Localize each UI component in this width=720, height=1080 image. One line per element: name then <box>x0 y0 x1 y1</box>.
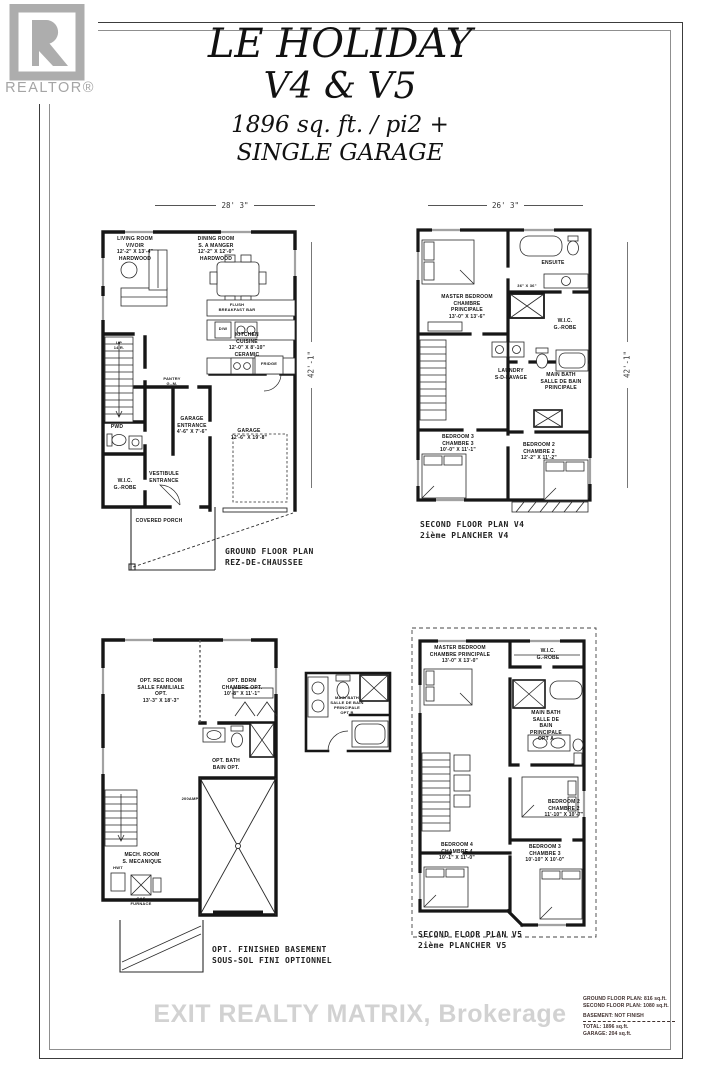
basement-unexcavated-x <box>200 778 276 915</box>
basement-stairs <box>105 790 137 846</box>
label-dishwasher: D/W <box>214 326 232 331</box>
caption-ground-floor: GROUND FLOOR PLAN REZ-DE-CHAUSSEE <box>225 546 314 568</box>
label-electrical-panel: 200AMP <box>177 796 203 801</box>
ground-floor-drawing <box>95 222 307 574</box>
room-label-powder: PWD <box>105 424 129 431</box>
basement-exterior-stairwell <box>120 920 203 972</box>
ground-height-dimension: 42'-1" <box>307 343 316 387</box>
v4-width-dimension: 26' 3" <box>428 201 583 210</box>
powder-room-fixtures <box>107 434 142 449</box>
v5-drawing <box>410 625 605 945</box>
front-door-swing <box>160 485 180 505</box>
v5-master-bed <box>424 669 472 705</box>
room-label-garage: GARAGE 12'-6" X 19'-8" <box>223 428 275 441</box>
basement-plan: OPT. REC ROOM SALLE FAMILIALE OPT. 13'-3… <box>95 628 310 980</box>
room-label-v5-wic: W.I.C. G.-ROBE <box>530 648 566 661</box>
room-label-v5-bedroom2: BEDROOM 2 CHAMBRE 2 11'-10" X 10'-7" <box>544 799 584 819</box>
room-label-vestibule: VESTIBULE ENTRANCE <box>145 471 183 484</box>
v4-bed3 <box>422 454 466 498</box>
title-line1: LE HOLIDAY <box>120 22 560 66</box>
basement-bath-fixtures <box>203 723 274 757</box>
label-furnace: GAS FURNACE <box>123 896 159 906</box>
floorplan-sheet: REALTOR® LE HOLIDAY V4 & V5 1896 sq. ft.… <box>0 0 720 1080</box>
v4-shower <box>510 294 544 318</box>
room-label-mech: MECH. ROOM S. MECANIQUE <box>117 852 167 865</box>
room-label-living: LIVING ROOM VIVOIR 12'-2" X 13'-4" HARDW… <box>109 236 161 262</box>
title-block: LE HOLIDAY V4 & V5 1896 sq. ft. / pi2 + … <box>120 22 560 168</box>
dining-furniture <box>210 255 266 303</box>
ground-height-dim-line-top <box>311 242 312 342</box>
room-label-v4-laundry: LAUNDRY S-D-LAVAGE <box>490 368 532 381</box>
room-label-bath-option: MAIN BATH SALLE DE BAIN PRINCIPALE OPT B <box>330 695 364 715</box>
room-label-v5-mainbath: MAIN BATH SALLE DE BAIN PRINCIPALE OPT A <box>526 710 566 743</box>
realtor-logo-icon <box>6 4 98 82</box>
v4-bed2 <box>544 460 588 500</box>
v5-bed4 <box>424 867 468 907</box>
room-label-garage-entrance: GARAGE ENTRANCE 4'-6" X 7'-6" <box>173 416 211 436</box>
basement-mech-equipment <box>111 873 161 895</box>
room-label-rec: OPT. REC ROOM SALLE FAMILIALE OPT. 13'-3… <box>131 678 191 704</box>
caption-basement: OPT. FINISHED BASEMENT SOUS-SOL FINI OPT… <box>212 944 332 966</box>
ground-floor-plan: LIVING ROOM VIVOIR 12'-2" X 13'-4" HARDW… <box>95 222 307 574</box>
room-label-v5-bedroom4: BEDROOM 4 CHAMBRE 4 10'-1" X 11'-0" <box>437 842 477 862</box>
room-label-v4-bedroom2: BEDROOM 2 CHAMBRE 2 12'-2" X 11'-2" <box>518 442 560 462</box>
v4-height-dimension: 42'-1" <box>623 343 632 387</box>
v4-height-dim-line-top <box>627 242 628 342</box>
title-line2: V4 & V5 <box>120 66 560 107</box>
v4-height-dim-line-bottom <box>627 388 628 488</box>
label-hwt: HWT <box>108 865 128 870</box>
room-label-v4-master: MASTER BEDROOM CHAMBRE PRINCIPALE 13'-0"… <box>438 294 496 320</box>
v4-stairs <box>420 340 446 420</box>
room-label-porch: COVERED PORCH <box>133 518 185 525</box>
stat-garage: GARAGE: 204 sq.ft. <box>583 1031 687 1038</box>
room-label-opt-bath: OPT. BATH BAIN OPT. <box>206 758 246 771</box>
label-pantry: PANTRY G.-M. <box>159 376 185 386</box>
room-label-opt-bdrm: OPT. BDRM CHAMBRE OPT. 10'-8" X 11'-1" <box>217 678 267 698</box>
caption-second-floor-v5: SECOND FLOOR PLAN V5 2ième PLANCHER V5 <box>418 929 522 951</box>
brokerage-watermark: EXIT REALTY MATRIX, Brokerage <box>0 1000 720 1029</box>
room-label-dining: DINING ROOM S. A MANGER 12'-2" X 12'-0" … <box>189 236 243 262</box>
label-flush-breakfast-bar: FLUSH BREAKFAST BAR <box>211 302 263 312</box>
room-label-v4-ensuite: ENSUITE <box>536 260 570 267</box>
room-label-v4-wic: W.I.C. G.-ROBE <box>548 318 582 331</box>
second-floor-v5-plan: MASTER BEDROOM CHAMBRE PRINCIPALE 13'-0"… <box>410 625 605 945</box>
ground-width-dimension: 28' 3" <box>155 201 315 210</box>
room-label-v4-bedroom3: BEDROOM 3 CHAMBRE 3 10'-0" X 11'-1" <box>437 434 479 454</box>
second-floor-v4-plan: MASTER BEDROOM CHAMBRE PRINCIPALE 13'-0"… <box>412 222 597 522</box>
ground-height-dim-line-bottom <box>311 388 312 488</box>
label-stairs-up: UP 14 R. <box>107 340 131 350</box>
v5-bed3 <box>540 869 582 919</box>
label-v4-shower-size: 36" X 36" <box>511 283 543 288</box>
garage-elements <box>223 374 287 512</box>
basement-drawing <box>95 628 310 980</box>
room-label-kitchen: KITCHEN CUISINE 12'-0" X 8'-10" CERAMIC <box>225 332 269 358</box>
room-label-v4-mainbath: MAIN BATH SALLE DE BAIN PRINCIPALE <box>540 372 582 392</box>
label-fridge: FRIDGE <box>255 361 283 366</box>
title-line4: SINGLE GARAGE <box>120 140 560 168</box>
title-line3: 1896 sq. ft. / pi2 + <box>120 111 560 140</box>
v4-deck <box>512 502 588 512</box>
v5-stairs <box>422 753 470 831</box>
room-label-v5-bedroom3: BEDROOM 3 CHAMBRE 3 10'-10" X 10'-0" <box>525 844 565 864</box>
realtor-logo-text: REALTOR® <box>2 80 98 96</box>
bath-option-plan: MAIN BATH SALLE DE BAIN PRINCIPALE OPT B <box>300 655 400 760</box>
room-label-v5-master: MASTER BEDROOM CHAMBRE PRINCIPALE 13'-0"… <box>428 645 492 665</box>
caption-second-floor-v4: SECOND FLOOR PLAN V4 2ième PLANCHER V4 <box>420 519 524 541</box>
room-label-wic: W.I.C. G.-ROBE <box>109 478 141 491</box>
